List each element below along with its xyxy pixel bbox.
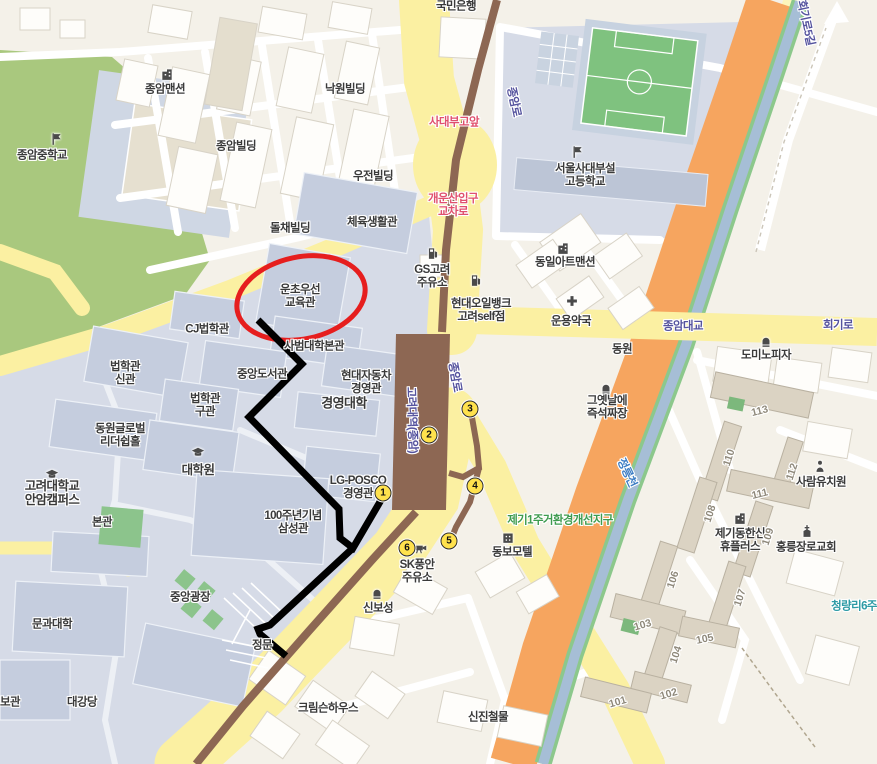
flag-icon [570, 145, 584, 159]
poi-label-대강당: 대강당 [67, 697, 97, 710]
road-label-회기로5길: 회기로5길 [794, 0, 816, 47]
poi-label-돌채빌딩: 돌채빌딩 [270, 223, 310, 236]
poi-label-도미노피자: 도미노피자 [741, 350, 791, 363]
road-label-종암대교: 종암대교 [663, 321, 703, 334]
camera-icon [414, 541, 428, 555]
poi-label-종암중학교: 종암중학교 [17, 150, 67, 163]
poi-label-사범대학본관: 사범대학본관 [284, 341, 344, 354]
cross-icon [565, 294, 579, 308]
poi-label-CJ법학관: CJ법학관 [185, 324, 228, 337]
poi-label-문과대학: 문과대학 [32, 619, 72, 632]
poi-label-동원글로벌-리더쉽홀: 동원글로벌 리더쉽홀 [95, 423, 145, 449]
road-label-종암로: 종암로 [504, 86, 523, 118]
poi-label-신보성: 신보성 [363, 603, 393, 616]
building-number-106: 106 [666, 570, 683, 590]
subway-exit-4[interactable]: 4 [467, 478, 484, 495]
poi-label-법학관-신관: 법학관 신관 [110, 361, 140, 387]
building-number-113: 113 [750, 404, 769, 420]
building-number-109: 109 [761, 527, 778, 547]
food-icon [759, 334, 773, 348]
building-number-101: 101 [608, 695, 628, 711]
flag-icon [49, 132, 63, 146]
cap-icon [191, 446, 205, 460]
road-label-정릉천: 정릉천 [614, 457, 638, 490]
subway-exit-6[interactable]: 6 [399, 540, 416, 557]
gas-icon [426, 246, 440, 260]
road-label-고려대역(종암): 고려대역(종암) [403, 387, 418, 454]
poi-label-동원: 동원 [612, 344, 632, 357]
road-label-제기1주거환경개선지구: 제기1주거환경개선지구 [507, 515, 613, 528]
building-number-102: 102 [659, 687, 679, 703]
poi-label-홍릉장로교회: 홍릉장로교회 [776, 542, 836, 555]
map-viewport[interactable]: 국민은행종암맨션낙원빌딩종암중학교종암빌딩우전빌딩돌채빌딩체육생활관서울사대부설… [0, 0, 877, 764]
poi-label-고려대학교-안암캠퍼스: 고려대학교 안암캠퍼스 [25, 479, 80, 507]
poi-label-체육생활관: 체육생활관 [347, 217, 397, 230]
building-number-111: 111 [751, 487, 770, 502]
road-label-회기로: 회기로 [823, 320, 853, 333]
poi-label-사람유치원: 사람유치원 [796, 477, 846, 490]
poi-label-크림슨하우스: 크림슨하우스 [298, 703, 358, 716]
poi-label-운초우선-교육관: 운초우선 교육관 [280, 284, 320, 310]
poi-label-그옛날에-즉석짜장: 그옛날에 즉석짜장 [587, 395, 627, 421]
gas-icon [469, 273, 483, 287]
poi-label-현대오일뱅크-고려self점: 현대오일뱅크 고려self점 [451, 298, 511, 324]
label-layer: 국민은행종암맨션낙원빌딩종암중학교종암빌딩우전빌딩돌채빌딩체육생활관서울사대부설… [0, 0, 877, 764]
poi-label-정문: 정문 [252, 640, 272, 653]
poi-label-본관: 본관 [92, 517, 112, 530]
poi-label-100주년기념-삼성관: 100주년기념 삼성관 [264, 510, 321, 536]
poi-label-종암맨션: 종암맨션 [145, 84, 185, 97]
motel-icon [501, 530, 515, 544]
poi-label-우전빌딩: 우전빌딩 [353, 171, 393, 184]
road-label-종암로: 종암로 [445, 361, 463, 393]
poi-label-제기동한신-휴플러스: 제기동한신 휴플러스 [715, 528, 765, 554]
poi-label-종암빌딩: 종암빌딩 [216, 141, 256, 154]
food-icon [370, 586, 384, 600]
building-icon [160, 67, 174, 81]
road-label-개운산입구-교차로: 개운산입구 교차로 [428, 193, 478, 219]
church-icon [800, 524, 814, 538]
poi-label-경영대학: 경영대학 [321, 397, 366, 412]
subway-exit-3[interactable]: 3 [462, 401, 479, 418]
building-number-104: 104 [669, 645, 686, 665]
person-icon [813, 459, 827, 473]
subway-exit-1[interactable]: 1 [375, 485, 392, 502]
poi-label-운용약국: 운용약국 [551, 316, 591, 329]
poi-label-대학원: 대학원 [182, 463, 215, 477]
poi-label-동일아트맨션: 동일아트맨션 [535, 257, 595, 270]
building-icon [556, 241, 570, 255]
building-icon [733, 511, 747, 525]
subway-exit-2[interactable]: 2 [421, 427, 438, 444]
food-icon [599, 381, 613, 395]
poi-label-신진철물: 신진철물 [468, 712, 508, 725]
poi-label-GS고려-주유소: GS고려 주유소 [414, 264, 449, 290]
poi-label-동보모텔: 동보모텔 [492, 547, 532, 560]
building-number-103: 103 [633, 618, 653, 634]
subway-exit-5[interactable]: 5 [441, 533, 458, 550]
poi-label-현대자동차-경영관: 현대자동차 경영관 [341, 370, 391, 396]
poi-label-서울사대부설-고등학교: 서울사대부설 고등학교 [555, 163, 615, 189]
poi-label-보관: 보관 [0, 697, 20, 710]
building-number-108: 108 [703, 504, 720, 524]
poi-label-SK풍안-주유소: SK풍안 주유소 [400, 559, 435, 585]
poi-label-법학관-구관: 법학관 구관 [190, 393, 220, 419]
building-number-107: 107 [733, 588, 750, 608]
building-number-105: 105 [695, 632, 715, 647]
building-number-110: 110 [722, 448, 738, 468]
poi-label-중앙도서관: 중앙도서관 [237, 369, 287, 382]
poi-label-낙원빌딩: 낙원빌딩 [325, 84, 365, 97]
road-label-청량리6주: 청량리6주 [831, 601, 877, 614]
poi-label-중앙광장: 중앙광장 [170, 592, 210, 605]
poi-label-국민은행: 국민은행 [436, 1, 476, 14]
road-label-사대부고앞: 사대부고앞 [429, 117, 479, 130]
